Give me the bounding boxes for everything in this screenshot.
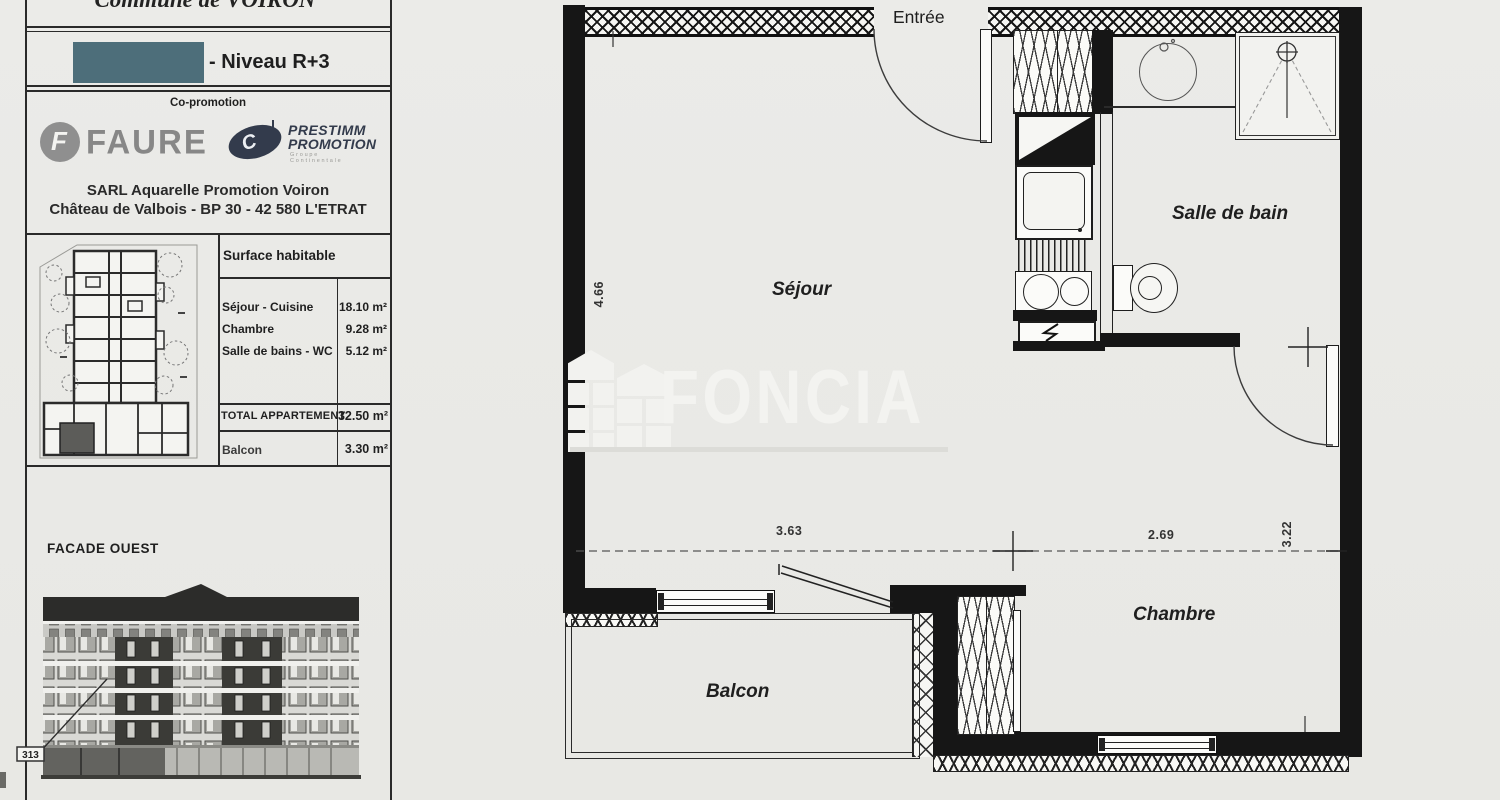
survey-cross bbox=[1288, 327, 1328, 367]
faure-logo-glyph: F bbox=[51, 126, 67, 157]
table-total-value: 32.50 m² bbox=[337, 409, 388, 423]
level-label: - Niveau R+3 bbox=[209, 51, 330, 74]
prestimm-logo-icon: C bbox=[225, 119, 286, 165]
prestimm-logo: C PRESTIMM PROMOTION Groupe Continentale bbox=[228, 122, 360, 166]
dim-sejour-depth: 4.66 bbox=[592, 281, 606, 307]
table-row-label: Chambre bbox=[222, 322, 274, 336]
watermark-cell bbox=[593, 383, 614, 405]
facade-elevation: 313 bbox=[15, 575, 370, 793]
watermark-house-icon bbox=[568, 350, 614, 380]
rule-mid-b bbox=[26, 90, 390, 92]
address-line-2: Château de Valbois - BP 30 - 42 580 L'ET… bbox=[26, 201, 390, 218]
dim-chambre-depth: 3.22 bbox=[1280, 521, 1294, 547]
tableblock-top-rule bbox=[26, 233, 390, 235]
faure-logo-text: FAURE bbox=[86, 122, 208, 162]
table-row-value: 5.12 m² bbox=[337, 344, 387, 358]
water-heater-glyph bbox=[1044, 324, 1058, 341]
entry-door-arc bbox=[874, 29, 987, 141]
co-promotion-label: Co-promotion bbox=[26, 97, 390, 109]
table-row-value: 18.10 m² bbox=[337, 300, 387, 314]
label-balcon: Balcon bbox=[706, 681, 769, 703]
watermark-cell bbox=[568, 383, 589, 405]
table-row-label: Séjour - Cuisine bbox=[222, 300, 313, 314]
table-total-bottom-rule bbox=[218, 430, 390, 432]
rule-mid-a bbox=[26, 85, 390, 87]
label-entree: Entrée bbox=[893, 7, 945, 28]
label-chambre: Chambre bbox=[1133, 604, 1215, 626]
commune-title-clip: Commune de VOIRON bbox=[40, 0, 370, 13]
prestimm-flag-icon bbox=[272, 120, 274, 132]
watermark-cell bbox=[568, 408, 589, 430]
scanned-floor-plan-page: { "header": { "commune": "Commune de VOI… bbox=[0, 0, 1500, 800]
bath-door-arc bbox=[1234, 346, 1333, 445]
site-plan-map bbox=[30, 237, 202, 465]
label-salle-de-bain: Salle de bain bbox=[1172, 203, 1288, 225]
watermark-underline bbox=[570, 447, 948, 452]
sidebar-right-border bbox=[390, 0, 392, 800]
facade-unit-ref: 313 bbox=[22, 750, 39, 761]
table-row-label: Salle de bains - WC bbox=[222, 344, 333, 358]
page-edge-mark bbox=[0, 772, 6, 788]
survey-cross bbox=[993, 531, 1033, 571]
redaction-box bbox=[73, 42, 204, 83]
prestimm-subtext: Groupe Continentale bbox=[290, 152, 360, 164]
label-sejour: Séjour bbox=[772, 279, 831, 301]
faure-logo-icon: F bbox=[40, 122, 80, 162]
table-balcon-value: 3.30 m² bbox=[337, 442, 388, 456]
watermark-text: FONCIA bbox=[660, 354, 925, 441]
table-row-value: 9.28 m² bbox=[337, 322, 387, 336]
table-total-label: TOTAL APPARTEMENT bbox=[221, 410, 345, 422]
dim-chambre-width: 2.69 bbox=[1148, 528, 1174, 542]
table-total-top-rule bbox=[218, 403, 390, 405]
address-line-1: SARL Aquarelle Promotion Voiron bbox=[26, 182, 390, 199]
faure-logo: F FAURE bbox=[40, 120, 205, 164]
tableblock-bottom-rule bbox=[26, 465, 390, 467]
commune-title: Commune de VOIRON bbox=[40, 0, 370, 13]
table-balcon-label: Balcon bbox=[222, 443, 262, 457]
watermark-cell bbox=[593, 408, 614, 430]
prestimm-logo-glyph: C bbox=[239, 130, 259, 156]
facade-title: FACADE OUEST bbox=[47, 541, 159, 556]
shower-drain-icon bbox=[1276, 41, 1298, 63]
dim-sejour-width: 3.63 bbox=[776, 524, 802, 538]
balcony-door-leaf bbox=[779, 564, 893, 608]
prestimm-text-line2: PROMOTION bbox=[288, 136, 376, 152]
surface-table-title: Surface habitable bbox=[223, 248, 336, 263]
rule-top-a bbox=[26, 26, 390, 28]
foncia-watermark: FONCIA bbox=[560, 340, 980, 460]
sink-faucet-icon bbox=[1160, 40, 1175, 52]
table-header-rule bbox=[218, 277, 390, 279]
rule-top-b bbox=[26, 31, 390, 33]
watermark-cell bbox=[617, 399, 642, 423]
